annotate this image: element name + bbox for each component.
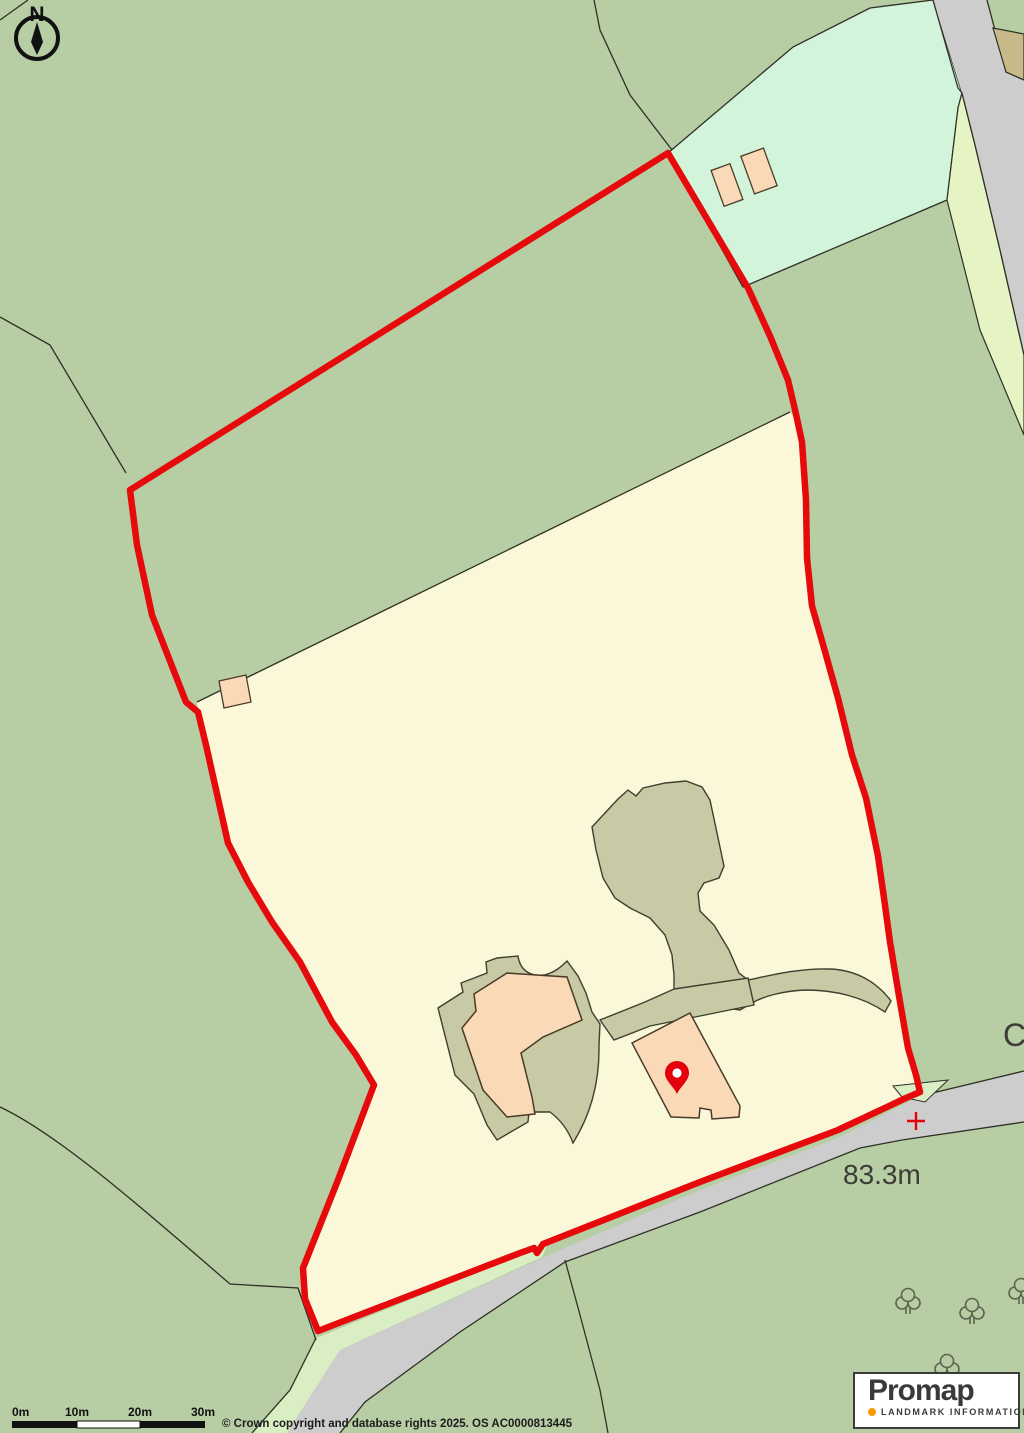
spot-height-label: 83.3m <box>843 1159 921 1190</box>
promap-logo: Promap LANDMARK INFORMATION <box>853 1372 1020 1429</box>
promap-tagline: LANDMARK INFORMATION <box>881 1407 1024 1417</box>
scale-label-10: 10m <box>65 1405 89 1419</box>
scale-segment-1 <box>12 1421 77 1428</box>
north-label: N <box>29 3 44 26</box>
scale-label-20: 20m <box>128 1405 152 1419</box>
pin-hole <box>672 1068 681 1077</box>
small-outbuilding <box>219 675 251 708</box>
scale-label-0: 0m <box>12 1405 29 1419</box>
logo-orange-dot-icon <box>868 1408 876 1416</box>
scale-segment-2 <box>77 1421 140 1428</box>
scale-segment-3 <box>140 1421 205 1428</box>
partial-road-label: C <box>1003 1017 1024 1053</box>
scale-label-30: 30m <box>191 1405 215 1419</box>
promap-brand-text: Promap <box>868 1376 1018 1406</box>
promap-map-view: 83.3m C N 0m 10m 20m 30m © Crown copyrig… <box>0 0 1024 1433</box>
map-canvas[interactable]: 83.3m C N 0m 10m 20m 30m © Crown copyrig… <box>0 0 1024 1433</box>
attribution-text: © Crown copyright and database rights 20… <box>222 1418 573 1430</box>
